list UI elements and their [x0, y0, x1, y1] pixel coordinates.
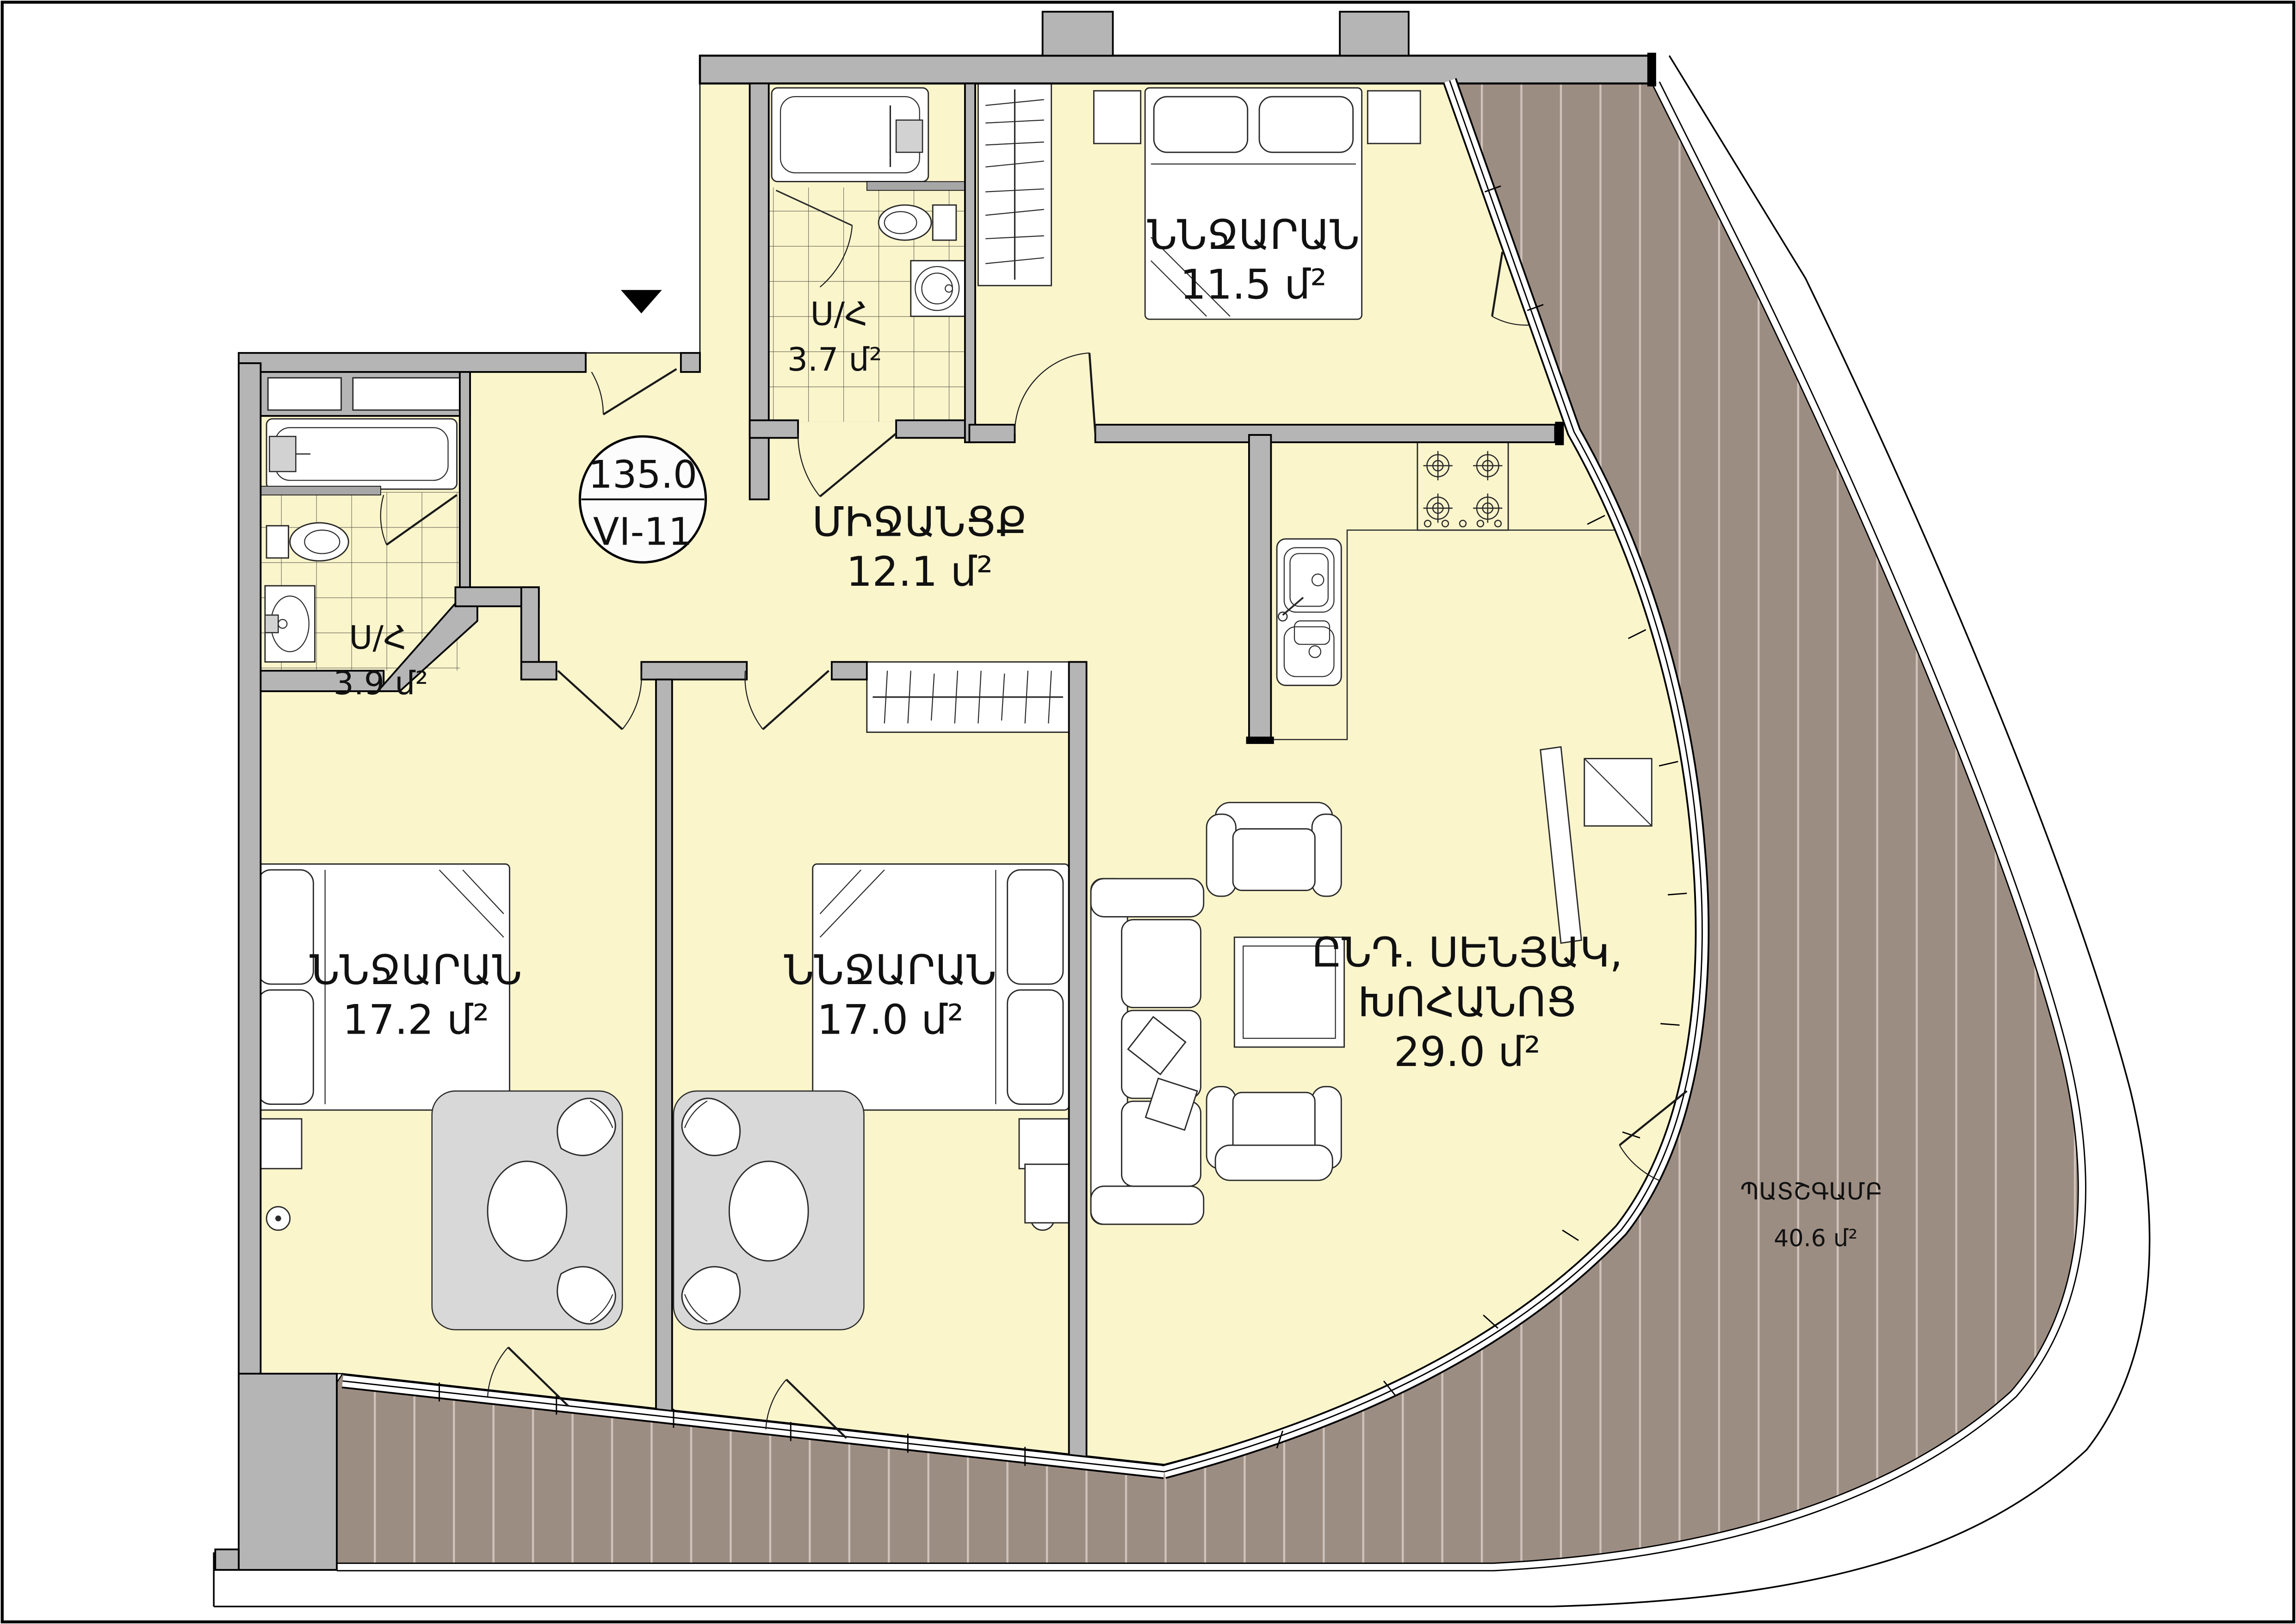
niche — [353, 378, 463, 410]
svg-text:12.1 մ²: 12.1 մ² — [846, 548, 993, 595]
sofa-cushion — [1122, 920, 1201, 1008]
bathtub-faucet-icon — [269, 436, 296, 471]
bathtub-faucet-icon — [896, 120, 922, 153]
basin-faucet-icon — [265, 615, 278, 632]
wall-top — [700, 56, 1652, 83]
label-bathroom-left: Ս/Հ — [349, 619, 406, 657]
toilet-tank — [266, 526, 288, 558]
toilet-bowl — [879, 205, 931, 240]
label-bedroom-top: ՆՆՋԱՐԱՆ — [1147, 211, 1360, 259]
wall-entry — [239, 353, 586, 372]
badge-total-area: 135.0 — [588, 453, 698, 497]
badge-unit-id: VI-11 — [593, 510, 693, 554]
label-living-kitchen: ԸՆԴ. ՍԵՆՅԱԿ, — [1312, 929, 1622, 976]
nightstand — [1368, 91, 1420, 143]
vent-column — [1340, 12, 1409, 56]
svg-text:29.0 մ²: 29.0 մ² — [1394, 1028, 1541, 1076]
floor-plan: ՆՆՋԱՐԱՆ 11.5 մ² ՄԻՋԱՆՑՔ 12.1 մ² Ս/Հ 3.7 … — [0, 0, 2296, 1624]
wall-bathroom-top-right — [965, 83, 975, 442]
toilet-tank — [933, 205, 956, 240]
pillow — [258, 990, 313, 1104]
wardrobe-top — [978, 83, 1051, 285]
sofa-armrest — [1091, 1186, 1204, 1224]
wall-kitchen-side — [1249, 435, 1271, 739]
svg-text:ԽՈՀԱՆՈՑ: ԽՈՀԱՆՈՑ — [1358, 979, 1577, 1026]
unit-badge: 135.0 VI-11 — [580, 436, 706, 562]
table — [488, 1161, 567, 1261]
svg-text:3.9 մ²: 3.9 մ² — [333, 664, 428, 702]
vent-column — [1043, 12, 1113, 56]
pillar-bottom-left — [239, 1374, 337, 1570]
label-bedroom-left: ՆՆՋԱՐԱՆ — [309, 946, 522, 994]
pillow — [1008, 990, 1063, 1104]
sofa-armrest — [1091, 879, 1204, 917]
svg-text:11.5 մ²: 11.5 մ² — [1180, 261, 1327, 309]
label-hallway: ՄԻՋԱՆՑՔ — [812, 498, 1027, 545]
table — [729, 1161, 808, 1261]
label-balcony: ՊԱՏՇԳԱՄԲ — [1740, 1178, 1882, 1205]
pillow — [1259, 97, 1353, 152]
pillow — [258, 870, 313, 984]
washbasin-cabinet — [911, 260, 965, 316]
wall-bedroom-living — [1069, 662, 1087, 1465]
pillow — [1154, 97, 1248, 152]
wardrobe-middle — [867, 662, 1069, 732]
niche — [268, 378, 341, 410]
svg-text:17.0 մ²: 17.0 մ² — [817, 996, 964, 1044]
label-bedroom-middle: ՆՆՋԱՐԱՆ — [784, 946, 996, 994]
wall-kitchen-top — [1095, 425, 1555, 442]
svg-text:3.7 մ²: 3.7 մ² — [787, 341, 882, 378]
kitchen-sink — [1277, 539, 1341, 686]
svg-text:17.2 մ²: 17.2 մ² — [342, 996, 489, 1044]
armchair — [1207, 803, 1341, 897]
nightstand — [1019, 1119, 1069, 1169]
label-bathroom-top: Ս/Հ — [811, 296, 868, 333]
wall-bathroom-left — [460, 372, 470, 597]
nightstand — [1094, 91, 1140, 143]
wall-bedroom-divider — [656, 680, 672, 1412]
pillow — [1008, 870, 1063, 984]
armchair — [1207, 1087, 1341, 1181]
wall-left — [239, 363, 260, 1382]
svg-text:40.6 մ²: 40.6 մ² — [1774, 1225, 1857, 1252]
